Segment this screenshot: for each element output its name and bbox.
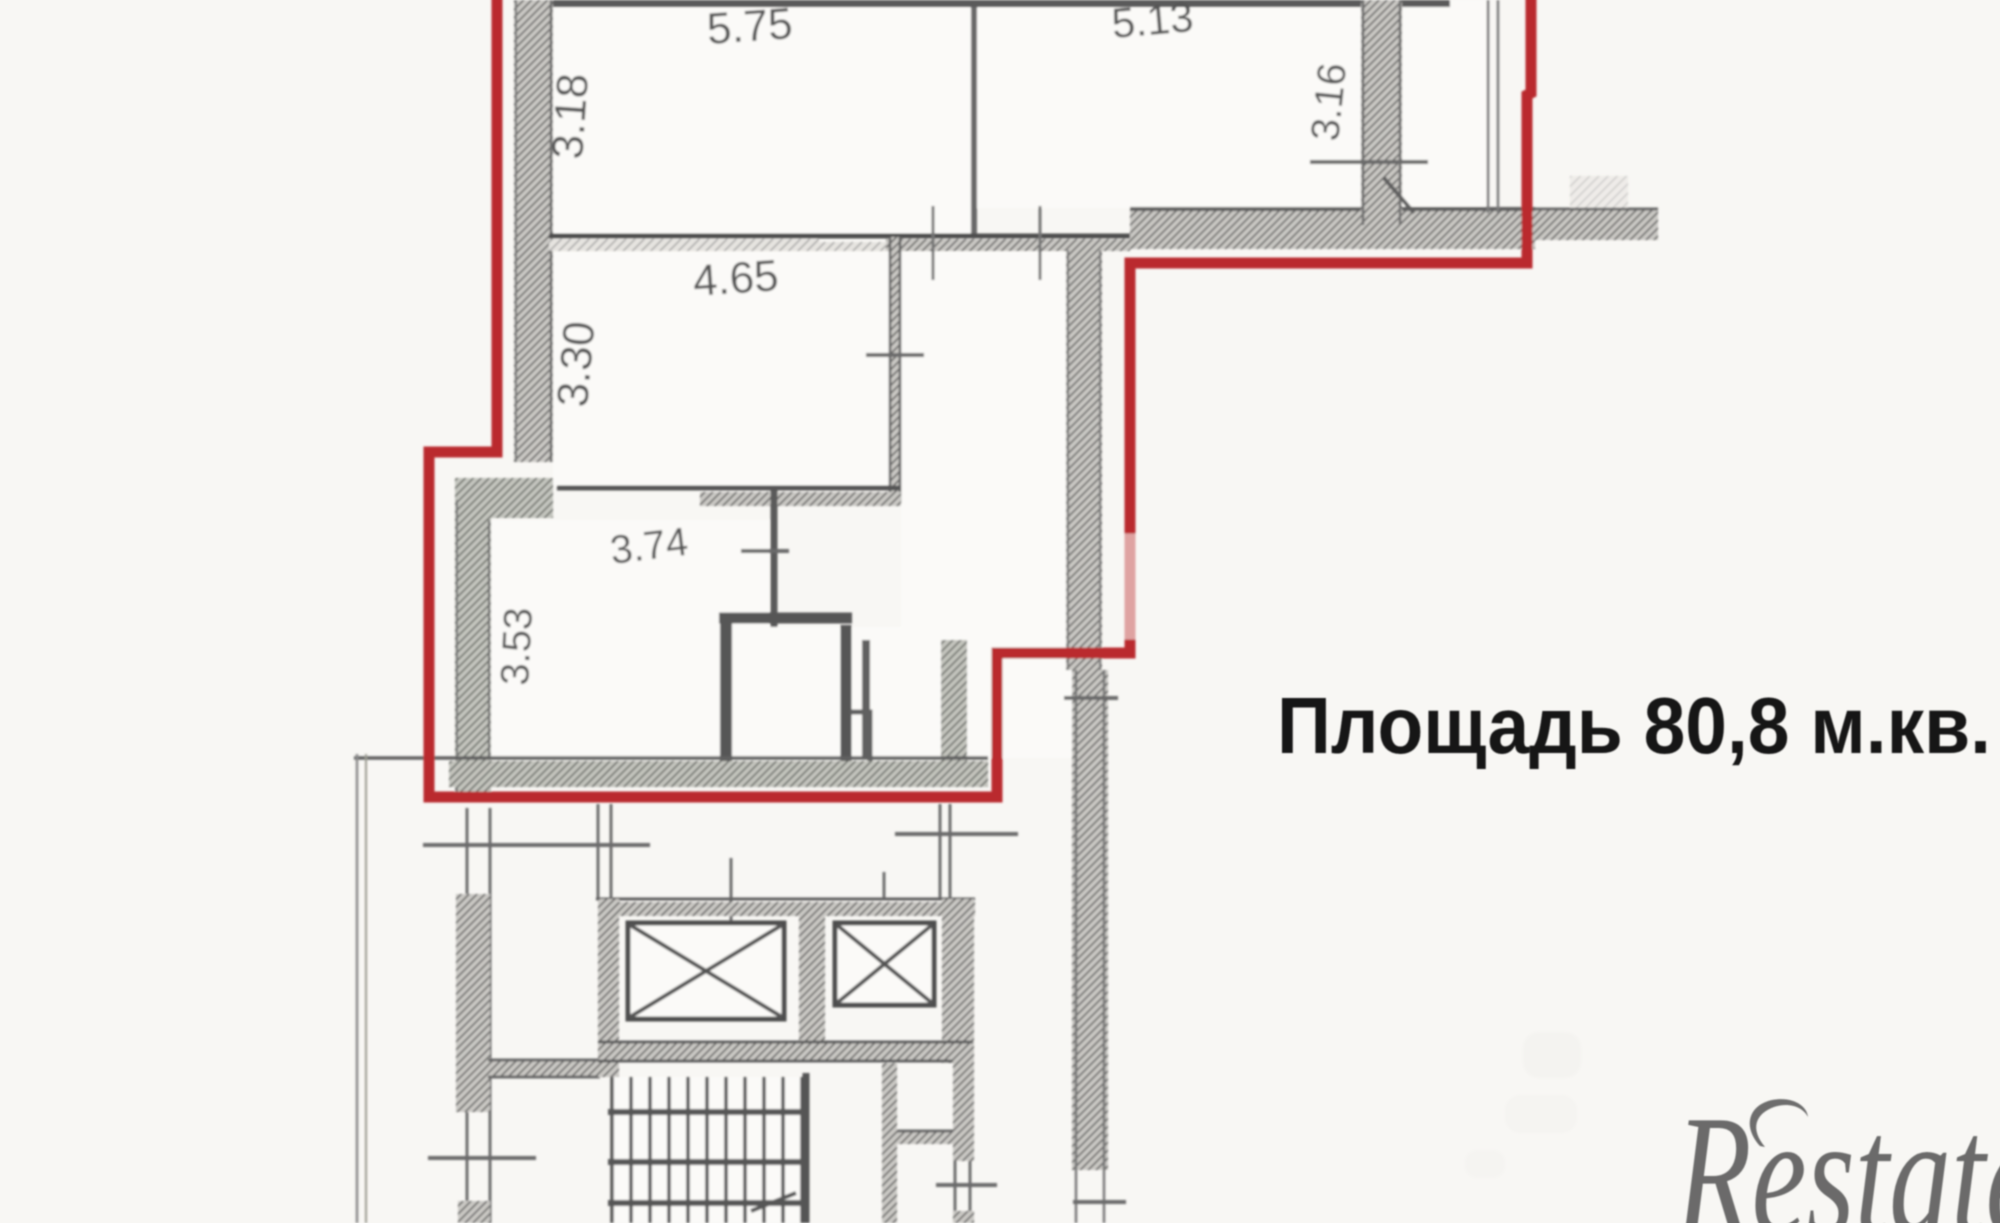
svg-text:3.18: 3.18 — [543, 72, 598, 161]
svg-text:3.30: 3.30 — [548, 319, 604, 409]
svg-text:3.16: 3.16 — [1303, 61, 1355, 143]
svg-text:3.74: 3.74 — [608, 520, 691, 573]
svg-text:4.65: 4.65 — [691, 251, 780, 306]
svg-text:5.13: 5.13 — [1110, 0, 1196, 47]
svg-text:Restate: Restate — [1675, 1080, 2000, 1223]
svg-text:5.75: 5.75 — [705, 0, 794, 54]
svg-text:Площадь 80,8 м.кв.: Площадь 80,8 м.кв. — [1277, 681, 1991, 770]
svg-text:3.53: 3.53 — [493, 606, 541, 686]
